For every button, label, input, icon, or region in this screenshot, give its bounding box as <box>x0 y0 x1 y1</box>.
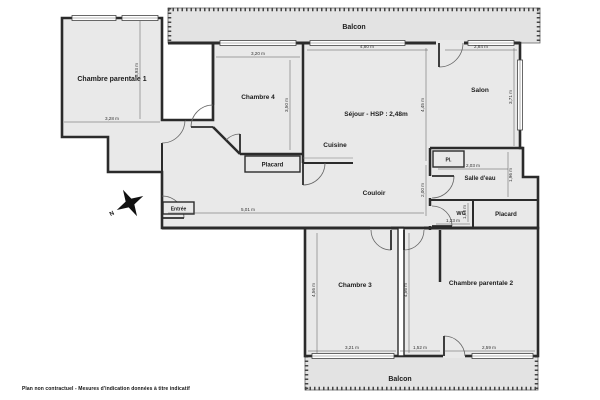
dim-sejour-h: 4,45 m <box>420 98 425 112</box>
room-label-couloir: Couloir <box>363 190 386 197</box>
room-label-entree: Entrée <box>171 207 187 213</box>
compass-star-icon <box>110 183 151 224</box>
dim-c3-w: 3,21 m <box>345 345 359 350</box>
balcony-bottom-label: Balcon <box>388 376 411 383</box>
room-label-cuisine: Cuisine <box>323 142 347 149</box>
hall-closet-label: Placard <box>262 163 284 169</box>
dim-cp2-w: 2,59 m <box>482 345 496 350</box>
dim-wc-w: 1,23 m <box>446 218 460 223</box>
dim-c4-h: 3,50 m <box>284 98 289 112</box>
lower-wing-floor <box>305 228 538 356</box>
dim-c4-w: 3,20 m <box>251 51 265 56</box>
dim-cp1-w: 3,28 m <box>105 116 119 121</box>
room-label-sejour: Séjour - HSP : 2,48m <box>344 111 408 118</box>
dim-salon-h: 3,71 m <box>508 90 513 104</box>
room-label-sde: Salle d'eau <box>464 176 495 182</box>
balcony-top-label: Balcon <box>342 24 365 31</box>
compass-north-label: N <box>109 211 116 218</box>
dim-couloir-w: 5,01 m <box>241 207 255 212</box>
room-label-c3: Chambre 3 <box>338 282 372 289</box>
dim-sde-h: 1,96 m <box>508 168 513 182</box>
dim-couloir-h: 2,00 m <box>420 183 425 197</box>
dim-sejour-w: 4,80 m <box>360 44 374 49</box>
floor-plan-page: Balcon Balcon <box>0 0 600 400</box>
balcony-bottom: Balcon <box>305 356 538 390</box>
dim-cp1-h: 3,93 m <box>134 63 139 77</box>
pl-closet-label: Pl. <box>445 158 452 164</box>
compass: N <box>102 183 150 227</box>
room-label-salon: Salon <box>471 87 489 94</box>
dim-wc-h: 1,50 m <box>462 205 467 219</box>
dim-c3-h: 4,56 m <box>311 283 316 297</box>
upper-wing-floor <box>62 18 538 228</box>
dim-sde-w: 2,03 m <box>466 163 480 168</box>
footer-note: Plan non contractuel - Mesures d'indicat… <box>22 386 190 392</box>
dim-mid-w: 1,52 m <box>413 345 427 350</box>
dim-mid-h: 4,56 m <box>403 283 408 297</box>
balcony-top: Balcon <box>168 8 540 43</box>
floor-plan-svg: Balcon Balcon <box>0 0 600 400</box>
room-label-c4: Chambre 4 <box>241 94 275 101</box>
placard-south-label: Placard <box>495 212 517 218</box>
dim-salon-w: 2,84 m <box>474 44 488 49</box>
room-label-cp2: Chambre parentale 2 <box>449 280 514 287</box>
